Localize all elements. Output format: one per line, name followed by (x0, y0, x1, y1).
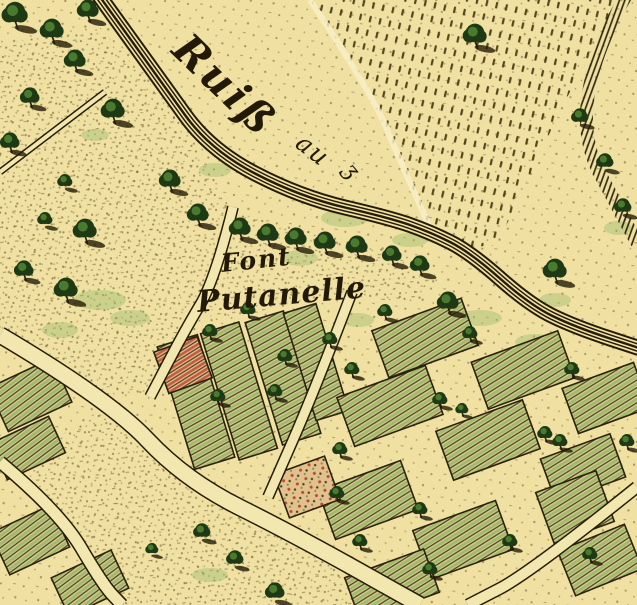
canopy-highlight (355, 536, 361, 542)
grass-patch (81, 129, 109, 141)
canopy-highlight (325, 334, 331, 340)
canopy-highlight (425, 564, 431, 570)
canopy-highlight (622, 436, 628, 442)
canopy-highlight (380, 306, 386, 312)
canopy-highlight (213, 391, 219, 397)
canopy-highlight (435, 394, 441, 400)
canopy-highlight (414, 258, 422, 266)
canopy-highlight (45, 22, 55, 32)
canopy-highlight (468, 27, 478, 37)
canopy-highlight (280, 351, 286, 357)
canopy-highlight (69, 52, 78, 61)
grass-patch (74, 290, 126, 310)
canopy-highlight (78, 222, 88, 232)
canopy-highlight (575, 110, 582, 117)
canopy-highlight (347, 364, 353, 370)
canopy-highlight (386, 248, 394, 256)
canopy-highlight (234, 220, 243, 229)
antique-map: Ruiß au ʒ Font Putanelle (0, 0, 637, 605)
canopy-highlight (458, 405, 463, 410)
canopy-highlight (192, 206, 201, 215)
canopy-highlight (548, 262, 558, 272)
grass-patch (192, 568, 228, 582)
canopy-highlight (59, 281, 69, 291)
canopy-highlight (351, 238, 360, 247)
canopy-highlight (164, 172, 173, 181)
canopy-highlight (290, 230, 299, 239)
canopy-highlight (415, 504, 421, 510)
canopy-highlight (335, 444, 341, 450)
canopy-highlight (618, 200, 625, 207)
canopy-highlight (332, 488, 338, 494)
canopy-highlight (465, 328, 471, 334)
canopy-highlight (205, 326, 211, 332)
canopy-highlight (60, 176, 66, 182)
canopy-highlight (600, 155, 607, 162)
grass-patch (42, 322, 78, 338)
canopy-highlight (585, 549, 591, 555)
canopy-highlight (540, 428, 546, 434)
canopy-highlight (24, 90, 32, 98)
canopy-highlight (148, 545, 153, 550)
canopy-highlight (40, 214, 46, 220)
canopy-highlight (505, 536, 511, 542)
map-canvas: Ruiß au ʒ Font Putanelle (0, 0, 637, 605)
canopy-highlight (262, 226, 271, 235)
canopy-highlight (442, 294, 451, 303)
grass-patch (110, 310, 150, 326)
canopy-highlight (230, 552, 237, 559)
canopy-highlight (106, 102, 116, 112)
canopy-highlight (555, 436, 561, 442)
canopy-highlight (319, 234, 328, 243)
canopy-highlight (567, 364, 573, 370)
canopy-highlight (269, 585, 277, 593)
canopy-highlight (197, 525, 204, 532)
canopy-highlight (82, 2, 91, 11)
canopy-highlight (270, 386, 276, 392)
canopy-highlight (18, 263, 26, 271)
canopy-highlight (7, 5, 18, 16)
canopy-highlight (4, 135, 12, 143)
